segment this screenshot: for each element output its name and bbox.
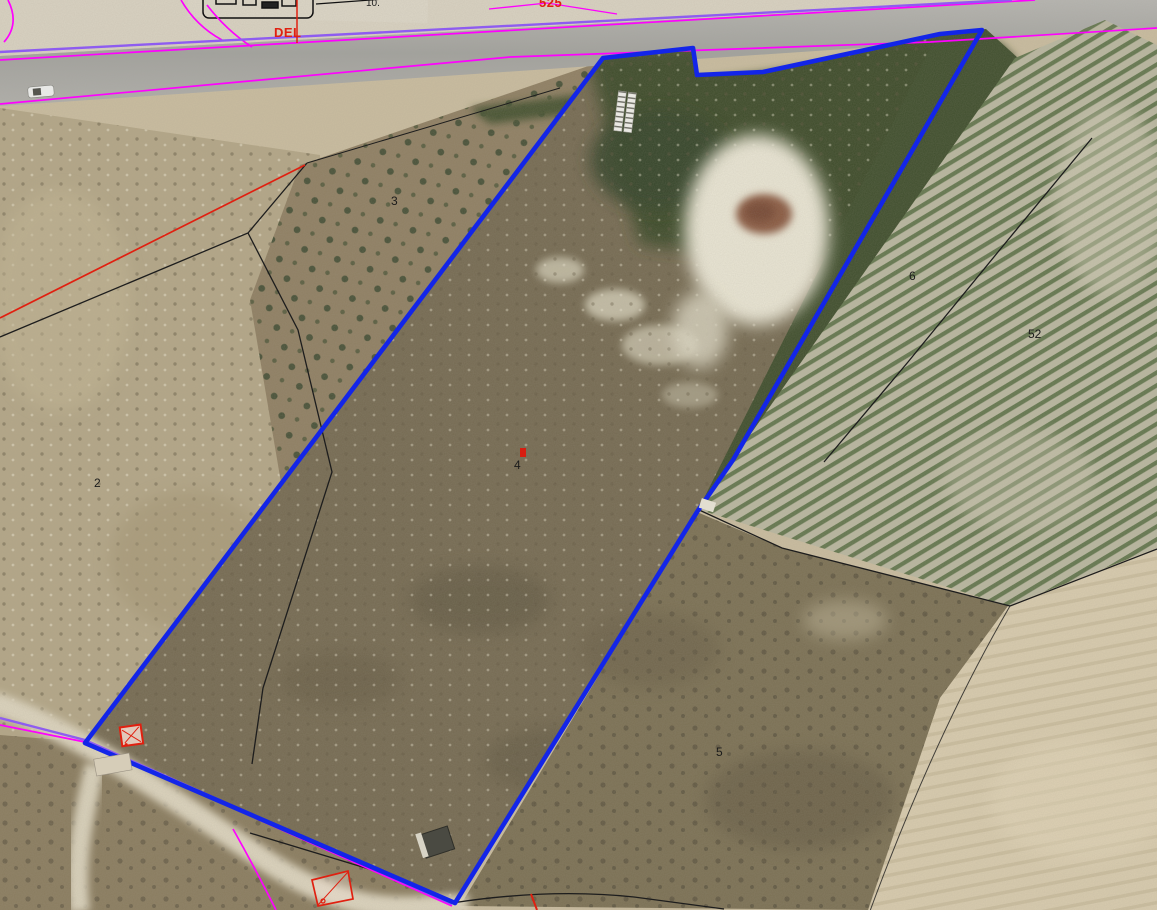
parcel-label-6[interactable]: 6 — [909, 269, 916, 283]
car-on-road — [28, 85, 55, 98]
terrain-zones — [0, 0, 1157, 910]
red-building-footprint-1 — [120, 725, 144, 747]
orthophoto-canvas: DEL 525 10. 2 3 4 5 6 52 — [0, 0, 1157, 910]
road-number-label: 525 — [539, 0, 562, 10]
parcel-label-2[interactable]: 2 — [94, 476, 101, 490]
parcel-label-5[interactable]: 5 — [716, 745, 723, 759]
small-number-label: 10. — [366, 0, 380, 9]
road-label-del: DEL — [274, 25, 302, 40]
parcel-label-52[interactable]: 52 — [1028, 327, 1042, 341]
parcel-label-4[interactable]: 4 — [514, 458, 521, 472]
red-point-marker — [520, 448, 526, 457]
photo-grain — [0, 0, 1157, 910]
parcel-label-3[interactable]: 3 — [391, 194, 398, 208]
map-viewport[interactable]: DEL 525 10. 2 3 4 5 6 52 — [0, 0, 1157, 910]
